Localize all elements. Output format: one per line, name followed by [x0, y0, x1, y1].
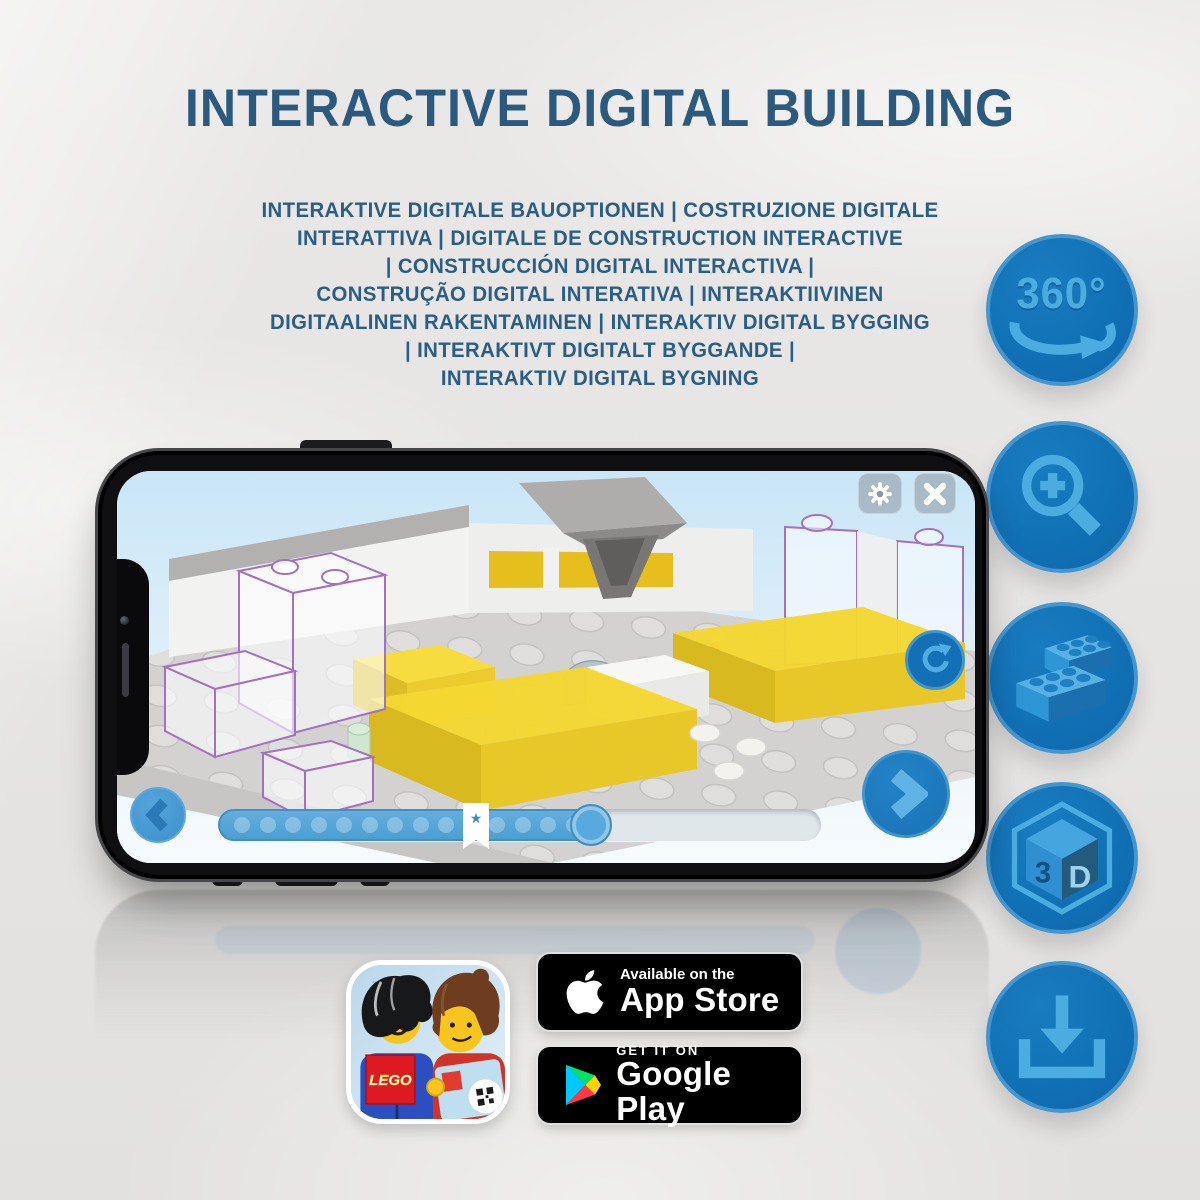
- chevron-right-icon: [884, 769, 928, 819]
- slider-thumb[interactable]: [570, 804, 612, 846]
- build-progress-slider[interactable]: [218, 809, 821, 841]
- zoom-in-icon: [1010, 445, 1114, 549]
- feature-3d-badge: 3 D: [986, 782, 1138, 934]
- rotate-view-button[interactable]: [905, 630, 965, 690]
- previous-step-button[interactable]: [130, 787, 186, 843]
- phone-body: ★: [95, 448, 989, 882]
- lego-logo: LEGO: [366, 1055, 415, 1104]
- svg-text:D: D: [1069, 859, 1092, 895]
- feature-download-badge: [986, 961, 1138, 1113]
- settings-button[interactable]: [858, 473, 902, 514]
- gear-icon: [867, 481, 893, 507]
- google-play-name: Google Play: [616, 1057, 801, 1126]
- subtitle-line: INTERAKTIV DIGITAL BYGNING: [18, 365, 1182, 393]
- 360-rotate-arrow-icon: [1006, 319, 1118, 359]
- close-icon: [923, 482, 947, 506]
- feature-brick-badge: [986, 602, 1138, 754]
- google-play-icon: [562, 1061, 602, 1109]
- app-store-name: App Store: [620, 983, 779, 1018]
- next-step-button[interactable]: [862, 750, 950, 838]
- app-store-badge[interactable]: Available on the App Store: [538, 954, 801, 1030]
- slider-filled-track: [218, 809, 598, 841]
- rotate-arrow-icon: [916, 641, 954, 679]
- earpiece-speaker: [122, 643, 129, 697]
- chevron-left-icon: [143, 798, 173, 832]
- subtitle-line: INTERATTIVA | DIGITALE DE CONSTRUCTION I…: [18, 225, 1182, 253]
- 3d-cube-icon: 3 D: [1004, 800, 1120, 916]
- google-play-badge[interactable]: GET IT ON Google Play: [538, 1047, 801, 1123]
- phone-mockup: ★: [95, 448, 989, 882]
- svg-text:3: 3: [1035, 856, 1051, 889]
- marketing-graphic: INTERACTIVE DIGITAL BUILDING INTERAKTIVE…: [0, 0, 1200, 1200]
- 360-label: 360°: [1017, 269, 1107, 319]
- reflection-slider-ghost: [215, 926, 815, 954]
- reflection-button-ghost: [835, 908, 921, 994]
- subtitle-line: INTERAKTIVE DIGITALE BAUOPTIONEN | COSTR…: [18, 197, 1182, 225]
- lego-app-artwork: LEGO: [351, 965, 505, 1119]
- download-icon: [1010, 985, 1114, 1089]
- lego-brick-icon: [1006, 622, 1118, 734]
- front-camera: [120, 616, 129, 625]
- app-screen: ★: [117, 471, 975, 863]
- feature-360-badge: 360°: [986, 234, 1138, 386]
- close-button[interactable]: [914, 473, 956, 514]
- lego-app-icon[interactable]: LEGO: [346, 960, 510, 1124]
- lego-3d-build-scene: [117, 471, 975, 863]
- apple-icon: [564, 967, 606, 1017]
- feature-zoom-badge: [986, 421, 1138, 573]
- svg-text:LEGO: LEGO: [369, 1072, 412, 1089]
- page-title: INTERACTIVE DIGITAL BUILDING: [30, 78, 1170, 139]
